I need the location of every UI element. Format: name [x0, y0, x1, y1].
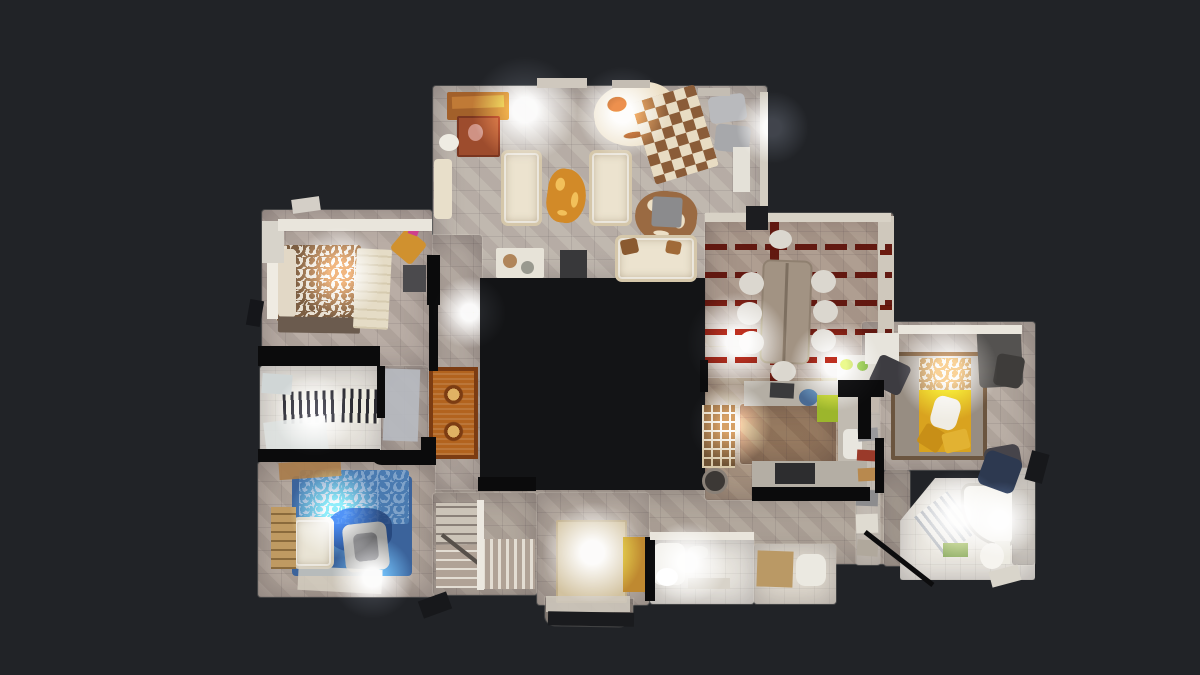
stair-flight-west	[436, 545, 477, 588]
pillow-2	[665, 240, 682, 255]
wall-corner-sw-b	[421, 437, 436, 465]
dresser-nw	[403, 265, 426, 292]
light-dining-2	[788, 318, 883, 413]
wall-nook-west	[377, 366, 385, 418]
wall-kitchen-south	[752, 487, 870, 501]
wall-closet-east	[875, 438, 884, 493]
side-table-round	[439, 134, 459, 151]
light-foyer	[540, 500, 645, 605]
light-kitchen	[688, 382, 773, 467]
window-bay-2	[612, 80, 650, 88]
light-bedroom-nw	[292, 225, 387, 320]
light-living-1	[470, 55, 580, 165]
desk-chair-2	[521, 261, 534, 274]
wall-white-dining-north	[705, 213, 891, 222]
light-hall-west	[432, 275, 507, 350]
stove	[775, 463, 815, 484]
dining-chair-e1	[811, 270, 836, 293]
light-bath-south	[645, 520, 730, 605]
light-tub	[960, 480, 1040, 560]
room-s2-cabinet	[756, 550, 793, 587]
stair-spine-wall	[477, 500, 484, 590]
window-bay-3	[698, 88, 730, 96]
light-dining-1	[685, 290, 790, 395]
light-living-3	[735, 90, 810, 165]
sofa-east	[589, 150, 632, 226]
window-bay-1	[537, 78, 587, 88]
room-s2-fixture	[796, 554, 826, 586]
scan-notch-living-se	[746, 206, 768, 230]
ceiling-beam-1	[705, 244, 892, 250]
light-bath-west	[272, 372, 357, 457]
wall-stairs-north	[478, 477, 536, 491]
bench-west-wall	[434, 159, 452, 219]
wall-bath-west-north	[258, 346, 380, 366]
scan-edge-porch	[548, 611, 634, 626]
dining-chair-n	[769, 230, 792, 249]
light-bedroom-east	[895, 318, 1000, 423]
mirror-silver	[383, 368, 420, 441]
desk-chair-1	[503, 254, 517, 268]
light-bedroom-sw-2	[330, 535, 415, 620]
table-kitchen-sw	[702, 468, 728, 494]
fireplace	[560, 250, 587, 278]
courtyard-void[interactable]	[480, 278, 705, 490]
floorplan-dollhouse-view[interactable]	[0, 0, 1200, 675]
beam-mark-east-1	[880, 250, 892, 255]
rug-runner-hall	[429, 367, 478, 459]
firepit-table	[651, 196, 683, 228]
stair-flight-east	[482, 539, 535, 589]
